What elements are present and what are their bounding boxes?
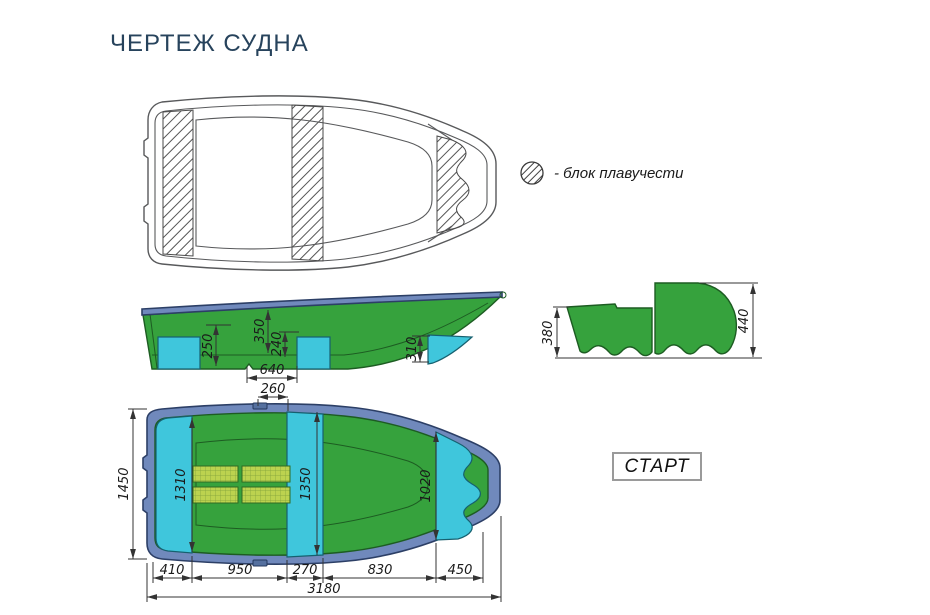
side-view: 250 350 240 640 310 [142, 292, 506, 383]
oarlock-tab-bottom [253, 560, 267, 566]
stern-block-side [158, 337, 200, 369]
dim-label-410: 410 [160, 563, 185, 578]
dim-label-260: 260 [261, 382, 286, 397]
dim-380: 380 [541, 307, 570, 357]
dim-label-1450: 1450 [117, 467, 132, 500]
dim-label-640: 640 [260, 363, 285, 378]
top-plan-view [144, 96, 496, 270]
dim-label-380: 380 [541, 321, 556, 346]
dim-1450: 1450 [117, 409, 147, 559]
dim-label-350: 350 [253, 319, 268, 344]
mid-block-side [297, 337, 330, 369]
bow-block-side [428, 335, 472, 364]
model-name-label: СТАРТ [625, 456, 690, 478]
legend: - блок плавучести [519, 160, 684, 186]
dim-label-830: 830 [368, 563, 393, 578]
floor-panel [193, 487, 238, 503]
dim-label-950: 950 [228, 563, 253, 578]
floor-panel [193, 466, 238, 482]
dim-label-250: 250 [201, 334, 216, 359]
dim-label-1020: 1020 [419, 469, 434, 502]
legend-label: - блок плавучести [554, 165, 684, 182]
bottom-plan-view: 260 1450 1310 1350 1020 [117, 382, 501, 602]
mid-flotation-block [292, 105, 323, 261]
stern-flotation-block [163, 110, 193, 256]
dim-label-440: 440 [737, 309, 752, 334]
dim-label-3180: 3180 [307, 582, 340, 597]
oarlock-tab-top [253, 403, 267, 409]
section-view: 380 440 [541, 283, 762, 358]
dim-label-1350: 1350 [299, 467, 314, 500]
dim-label-450: 450 [448, 563, 473, 578]
floor-panel [242, 466, 290, 482]
section-left-half [567, 304, 652, 356]
floor-panel [242, 487, 290, 503]
section-right-half [655, 283, 736, 354]
boat-drawing: 250 350 240 640 310 [0, 0, 930, 615]
drawing-sheet: ЧЕРТЕЖ СУДНА [0, 0, 930, 615]
dim-label-270: 270 [293, 563, 318, 578]
dim-label-1310: 1310 [174, 468, 189, 501]
flotation-block-icon [519, 160, 545, 186]
dim-label-240: 240 [270, 332, 285, 357]
model-name-box: СТАРТ [612, 452, 702, 481]
dim-label-310: 310 [405, 337, 420, 362]
